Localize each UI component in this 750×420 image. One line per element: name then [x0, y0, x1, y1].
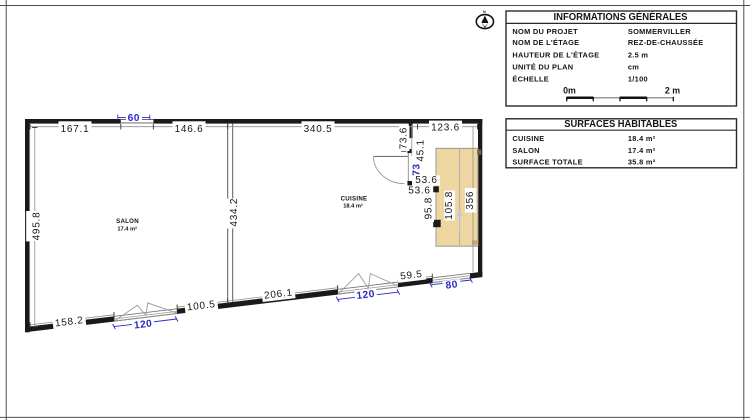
svg-text:HAUTEUR DE L'ÉTAGE: HAUTEUR DE L'ÉTAGE — [512, 50, 599, 59]
svg-text:167.1: 167.1 — [61, 124, 90, 135]
svg-text:CUISINE: CUISINE — [341, 196, 368, 203]
svg-text:18.4 m²: 18.4 m² — [343, 202, 363, 209]
svg-text:SURFACE TOTALE: SURFACE TOTALE — [512, 158, 582, 167]
svg-text:120: 120 — [356, 289, 376, 302]
svg-text:SALON: SALON — [116, 218, 139, 225]
svg-text:UNITÉ DU PLAN: UNITÉ DU PLAN — [512, 62, 573, 71]
svg-text:123.6: 123.6 — [431, 123, 460, 134]
svg-text:2 m: 2 m — [665, 86, 680, 96]
svg-text:2.5 m: 2.5 m — [628, 50, 649, 59]
svg-text:cm: cm — [628, 62, 639, 71]
svg-text:17.4 m²: 17.4 m² — [628, 146, 656, 155]
svg-text:95.8: 95.8 — [423, 197, 434, 219]
svg-text:REZ-DE-CHAUSSÉE: REZ-DE-CHAUSSÉE — [628, 38, 704, 47]
svg-text:INFORMATIONS GÉNÉRALES: INFORMATIONS GÉNÉRALES — [554, 10, 688, 23]
svg-text:N: N — [483, 10, 486, 14]
svg-text:1/100: 1/100 — [628, 74, 648, 83]
svg-text:SALON: SALON — [512, 146, 539, 155]
svg-text:45.1: 45.1 — [415, 139, 426, 161]
svg-text:80: 80 — [445, 279, 459, 291]
svg-text:356: 356 — [465, 191, 476, 210]
svg-text:146.6: 146.6 — [175, 124, 204, 135]
svg-text:18.4 m²: 18.4 m² — [628, 134, 656, 143]
svg-text:73.6: 73.6 — [398, 127, 409, 149]
svg-text:120: 120 — [133, 318, 153, 331]
svg-text:35.8 m²: 35.8 m² — [628, 158, 656, 167]
svg-text:60: 60 — [128, 113, 140, 124]
svg-text:73: 73 — [412, 163, 423, 175]
svg-text:17.4 m²: 17.4 m² — [117, 225, 137, 232]
svg-text:434.2: 434.2 — [229, 198, 240, 227]
svg-text:ÉCHELLE: ÉCHELLE — [512, 74, 549, 83]
svg-text:SOMMERVILLER: SOMMERVILLER — [628, 27, 691, 36]
svg-text:CUISINE: CUISINE — [512, 134, 544, 143]
svg-text:SURFACES HABITABLES: SURFACES HABITABLES — [564, 119, 677, 130]
svg-text:0m: 0m — [563, 86, 576, 96]
svg-text:105.8: 105.8 — [444, 191, 455, 220]
svg-text:NOM DE L'ÉTAGE: NOM DE L'ÉTAGE — [512, 38, 579, 47]
svg-text:NOM DU PROJET: NOM DU PROJET — [512, 27, 578, 36]
svg-text:495.8: 495.8 — [32, 212, 43, 241]
svg-text:340.5: 340.5 — [304, 124, 333, 135]
